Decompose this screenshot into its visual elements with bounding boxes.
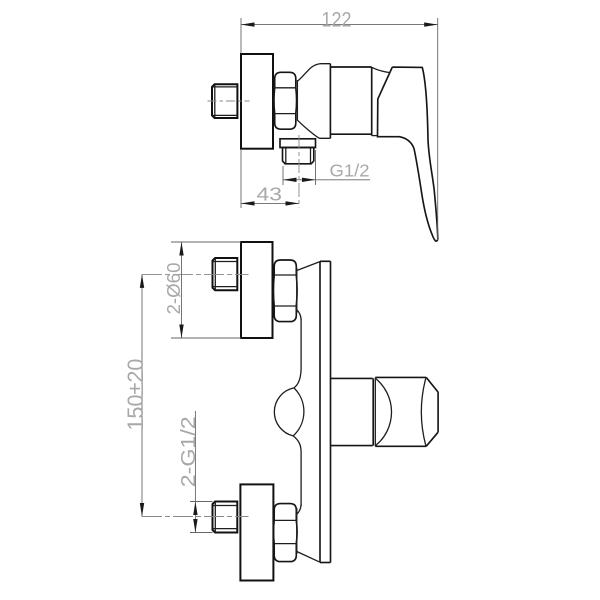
- svg-text:G1/2: G1/2: [330, 161, 370, 181]
- svg-text:2-Ø60: 2-Ø60: [163, 263, 184, 315]
- svg-text:150±20: 150±20: [123, 359, 148, 431]
- svg-text:2-G1/2: 2-G1/2: [178, 416, 200, 487]
- svg-text:122: 122: [322, 9, 352, 32]
- svg-text:43: 43: [257, 185, 283, 205]
